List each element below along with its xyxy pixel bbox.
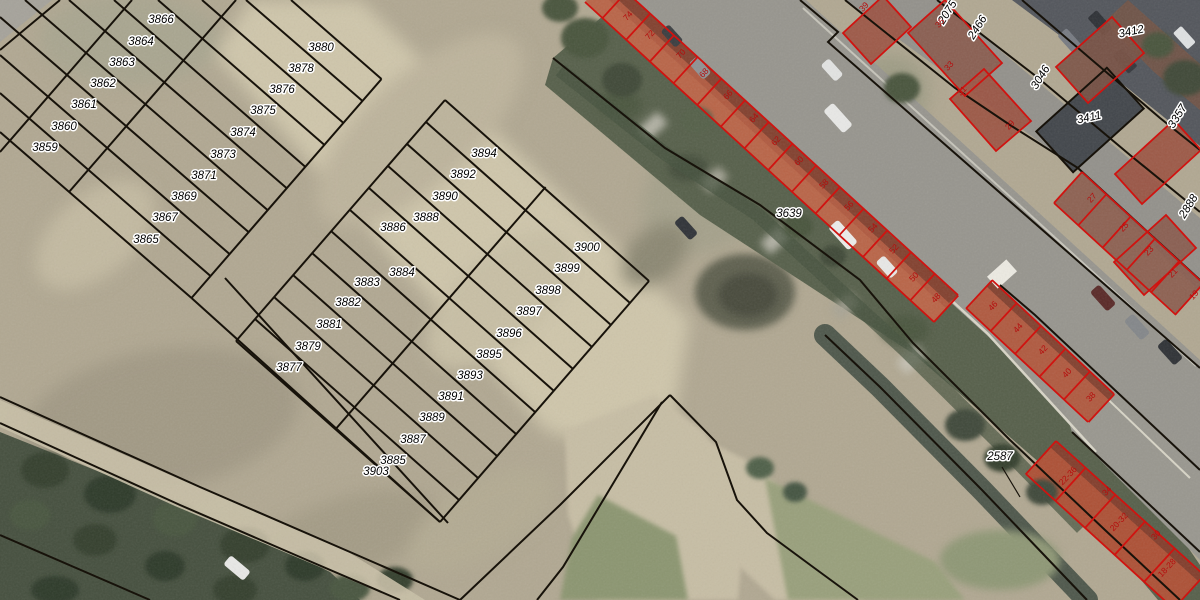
parcel-label-3876: 3876 xyxy=(269,84,295,96)
parcel-label-3874: 3874 xyxy=(230,127,256,139)
aerial-map: 3866386438633862386138603859388038783876… xyxy=(0,0,1200,600)
parcel-label-3861: 3861 xyxy=(71,99,97,111)
parcel-label-2587: 2587 xyxy=(986,451,1013,463)
parcel-label-3639: 3639 xyxy=(776,208,802,220)
terrain xyxy=(0,0,1200,600)
parcel-label-3877: 3877 xyxy=(276,362,302,374)
parcel-label-3875: 3875 xyxy=(250,105,276,117)
parcel-label-3865: 3865 xyxy=(133,234,159,246)
parcel-label-3893: 3893 xyxy=(457,370,483,382)
parcel-label-3899: 3899 xyxy=(554,263,580,275)
parcel-label-3892: 3892 xyxy=(450,169,476,181)
parcel-label-3900: 3900 xyxy=(574,242,600,254)
parcel-label-3890: 3890 xyxy=(432,191,458,203)
parcel-label-3871: 3871 xyxy=(191,170,217,182)
parcel-label-3878: 3878 xyxy=(288,63,314,75)
photo-grain xyxy=(0,0,1200,600)
parcel-label-3883: 3883 xyxy=(354,277,380,289)
parcel-label-3894: 3894 xyxy=(471,148,497,160)
map-viewport[interactable]: 3866386438633862386138603859388038783876… xyxy=(0,0,1200,600)
parcel-label-3889: 3889 xyxy=(419,412,445,424)
parcel-label-3867: 3867 xyxy=(152,212,178,224)
parcel-label-3888: 3888 xyxy=(413,212,439,224)
parcel-label-3884: 3884 xyxy=(389,267,415,279)
parcel-label-3887: 3887 xyxy=(400,434,426,446)
parcel-label-3896: 3896 xyxy=(496,328,522,340)
parcel-label-3860: 3860 xyxy=(51,121,77,133)
parcel-label-3897: 3897 xyxy=(516,306,542,318)
parcel-label-3895: 3895 xyxy=(476,349,502,361)
parcel-label-3880: 3880 xyxy=(308,42,334,54)
parcel-label-3863: 3863 xyxy=(109,57,135,69)
parcel-label-3864: 3864 xyxy=(128,36,154,48)
parcel-label-3873: 3873 xyxy=(210,149,236,161)
parcel-label-3898: 3898 xyxy=(535,285,561,297)
parcel-label-3862: 3862 xyxy=(90,78,116,90)
parcel-label-3879: 3879 xyxy=(295,341,321,353)
parcel-label-3859: 3859 xyxy=(32,142,58,154)
parcel-label-3866: 3866 xyxy=(148,14,174,26)
parcel-label-3869: 3869 xyxy=(171,191,197,203)
parcel-label-3903: 3903 xyxy=(363,466,389,478)
parcel-label-3882: 3882 xyxy=(335,297,361,309)
parcel-label-3886: 3886 xyxy=(380,222,406,234)
parcel-label-3881: 3881 xyxy=(316,319,342,331)
parcel-label-3891: 3891 xyxy=(438,391,464,403)
